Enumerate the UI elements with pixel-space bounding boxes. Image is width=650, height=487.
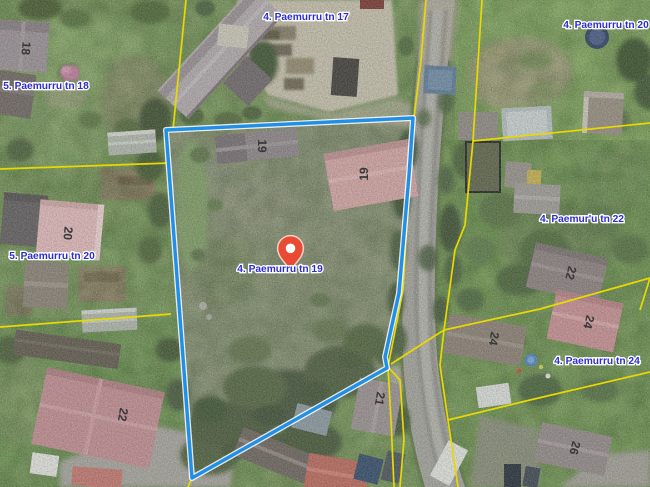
svg-text:4. Paemur'u tn 22: 4. Paemur'u tn 22 bbox=[540, 214, 624, 225]
svg-text:4. Paemurru tn 24: 4. Paemurru tn 24 bbox=[554, 356, 640, 367]
svg-text:22: 22 bbox=[115, 407, 131, 423]
svg-text:20: 20 bbox=[60, 226, 75, 241]
svg-text:21: 21 bbox=[372, 391, 388, 407]
svg-text:19: 19 bbox=[255, 139, 269, 153]
svg-text:18: 18 bbox=[18, 41, 33, 56]
svg-text:19: 19 bbox=[357, 167, 371, 181]
svg-text:4. Paemurru tn 20: 4. Paemurru tn 20 bbox=[563, 20, 649, 31]
svg-text:4. Paemurru tn 17: 4. Paemurru tn 17 bbox=[263, 12, 349, 23]
svg-text:5. Paemurru tn 20: 5. Paemurru tn 20 bbox=[9, 251, 95, 262]
svg-text:5. Paemurru tn 18: 5. Paemurru tn 18 bbox=[3, 81, 89, 92]
svg-text:4. Paemurru tn 19: 4. Paemurru tn 19 bbox=[237, 264, 323, 275]
svg-text:24: 24 bbox=[486, 331, 502, 347]
